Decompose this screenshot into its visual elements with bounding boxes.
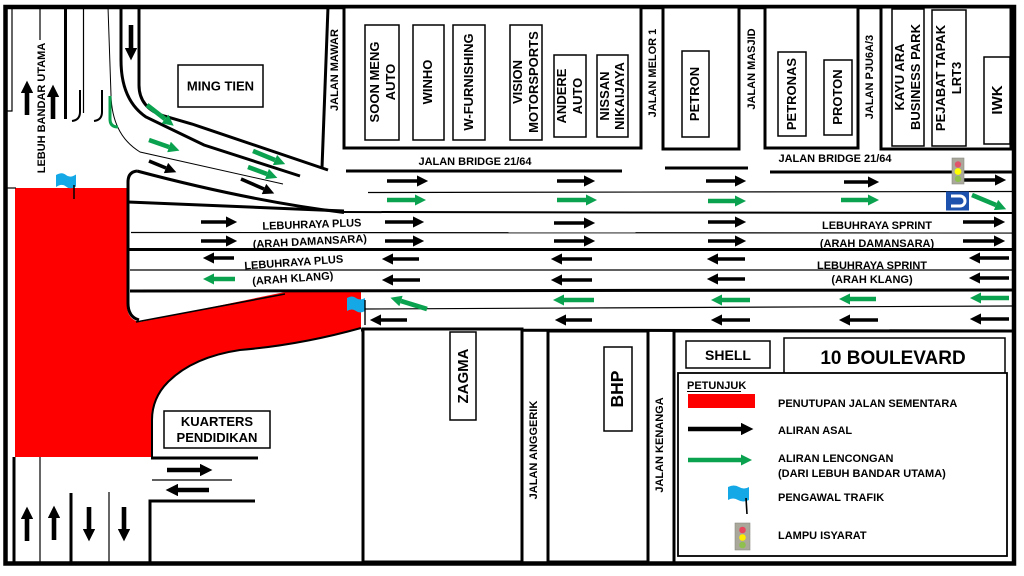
svg-text:JALAN MELOR 1: JALAN MELOR 1 [647,29,659,118]
svg-text:BHP: BHP [607,370,627,407]
svg-text:(ARAH DAMANSARA): (ARAH DAMANSARA) [820,238,935,250]
svg-text:LEBUHRAYA SPRINT: LEBUHRAYA SPRINT [822,220,932,232]
svg-text:WINHO: WINHO [420,60,435,105]
svg-text:PROTON: PROTON [830,69,845,124]
svg-text:KUARTERS: KUARTERS [181,414,254,429]
svg-text:PENDIDIKAN: PENDIDIKAN [177,430,258,445]
svg-text:ANDERE: ANDERE [554,68,569,123]
svg-text:ALIRAN LENCONGAN: ALIRAN LENCONGAN [778,453,894,465]
svg-text:JALAN MAWAR: JALAN MAWAR [329,29,341,111]
svg-text:W-FURNISHING: W-FURNISHING [461,33,476,130]
svg-text:PENUTUPAN JALAN SEMENTARA: PENUTUPAN JALAN SEMENTARA [778,398,957,410]
svg-text:NISSAN: NISSAN [597,71,612,120]
svg-text:LEBUHRAYA PLUS: LEBUHRAYA PLUS [262,217,361,232]
svg-text:SHELL: SHELL [705,347,751,363]
svg-text:SOON MENG: SOON MENG [367,42,382,123]
svg-text:MOTORSPORTS: MOTORSPORTS [526,31,541,133]
svg-text:ALIRAN ASAL: ALIRAN ASAL [778,425,852,437]
svg-text:KAYU ARA: KAYU ARA [892,43,907,111]
svg-text:(ARAH KLANG): (ARAH KLANG) [831,274,913,286]
svg-text:PETRONAS: PETRONAS [784,58,799,131]
svg-text:PEJABAT TAPAK: PEJABAT TAPAK [933,24,948,131]
svg-text:NIKAIJAYA: NIKAIJAYA [612,62,627,130]
svg-text:JALAN KENANGA: JALAN KENANGA [654,397,666,492]
svg-text:PETRON: PETRON [687,67,702,121]
svg-text:JALAN MASJID: JALAN MASJID [746,28,758,109]
svg-text:10 BOULEVARD: 10 BOULEVARD [820,348,965,369]
svg-text:LAMPU ISYARAT: LAMPU ISYARAT [778,530,867,542]
svg-text:JALAN PJU6A/3: JALAN PJU6A/3 [864,35,876,119]
svg-text:AUTO: AUTO [383,64,398,101]
svg-text:LEBUHRAYA SPRINT: LEBUHRAYA SPRINT [817,260,927,272]
svg-text:AUTO: AUTO [570,78,585,115]
svg-text:IWK: IWK [989,85,1006,114]
svg-text:LRT3: LRT3 [949,62,964,95]
svg-text:MING TIEN: MING TIEN [187,79,254,94]
svg-text:(DARI LEBUH BANDAR UTAMA): (DARI LEBUH BANDAR UTAMA) [778,468,946,480]
svg-text:LEBUH BANDAR UTAMA: LEBUH BANDAR UTAMA [36,43,48,174]
svg-text:PENGAWAL TRAFIK: PENGAWAL TRAFIK [778,492,884,504]
svg-text:VISION: VISION [510,60,525,104]
svg-text:JALAN BRIDGE 21/64: JALAN BRIDGE 21/64 [418,156,532,168]
svg-text:JALAN ANGGERIK: JALAN ANGGERIK [528,401,540,500]
svg-text:ZAGMA: ZAGMA [455,348,472,403]
svg-text:(ARAH KLANG): (ARAH KLANG) [252,270,334,288]
svg-text:PETUNJUK: PETUNJUK [687,380,746,392]
svg-text:JALAN BRIDGE 21/64: JALAN BRIDGE 21/64 [778,153,892,165]
svg-text:BUSINESS PARK: BUSINESS PARK [908,23,923,130]
